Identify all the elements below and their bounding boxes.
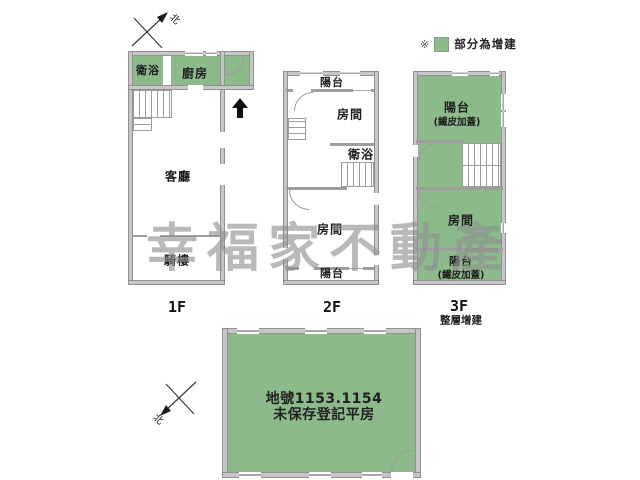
window	[501, 112, 506, 127]
window	[362, 472, 382, 478]
window	[490, 71, 499, 76]
legend: ※ 部分為增建	[420, 36, 517, 52]
floor-label-2f: 2F	[323, 298, 341, 316]
window	[237, 328, 259, 334]
room-label-balcony-top-3f: 陽台	[444, 99, 470, 116]
floor-note-3f: 整層增建	[440, 313, 482, 328]
window	[309, 472, 331, 478]
staircase-1f	[133, 90, 172, 118]
door-opening	[188, 85, 203, 90]
legend-reference-mark: ※	[420, 38, 429, 51]
staircase-3f	[462, 143, 501, 166]
room-label-room-top-2f: 房間	[337, 106, 363, 123]
staircase-1f	[133, 118, 152, 131]
legend-green-swatch-icon	[434, 37, 449, 52]
window	[206, 51, 217, 56]
staircase-2f	[341, 162, 374, 187]
floorplan-sheet: 幸福家不動產 ※ 部分為增建 北 衛浴 廚房 客廳	[0, 0, 640, 480]
room-label-balcony-top-2f: 陽台	[320, 74, 344, 90]
window	[501, 94, 506, 110]
compass-icon: 北	[150, 374, 206, 426]
compass-north-label: 北	[167, 11, 182, 27]
window	[452, 71, 468, 76]
window	[353, 89, 371, 92]
floorplan-ground-building: 地號1153.1154 未保存登記平房	[222, 328, 421, 478]
window	[364, 328, 386, 334]
room-note-balcony-top-3f: (鐵皮加蓋)	[434, 114, 481, 128]
window	[185, 51, 203, 56]
staircase-3f	[462, 165, 501, 187]
wall-segment	[415, 328, 421, 478]
agency-watermark: 幸福家不動產	[146, 206, 512, 281]
window	[305, 328, 327, 334]
door-opening	[413, 145, 418, 157]
room-label-living-1f: 客廳	[165, 168, 191, 185]
wall-segment	[416, 140, 465, 143]
door-opening	[391, 472, 413, 478]
legend-label: 部分為增建	[454, 36, 517, 52]
door-arc	[294, 92, 313, 111]
room-label-bath-1f: 衛浴	[136, 62, 160, 78]
entrance-arrow-icon	[232, 98, 248, 118]
door-opening	[220, 132, 225, 148]
ground-building-note: 未保存登記平房	[273, 404, 375, 424]
window	[239, 472, 261, 478]
compass-icon: 北	[126, 4, 182, 52]
door-opening	[220, 164, 225, 185]
wall-segment	[222, 328, 228, 478]
room-label-bath-2f: 衛浴	[348, 146, 374, 163]
staircase-2f	[288, 118, 306, 140]
door-opening	[374, 193, 379, 205]
floor-label-1f: 1F	[168, 298, 186, 316]
room-label-kitchen-1f: 廚房	[182, 65, 208, 82]
